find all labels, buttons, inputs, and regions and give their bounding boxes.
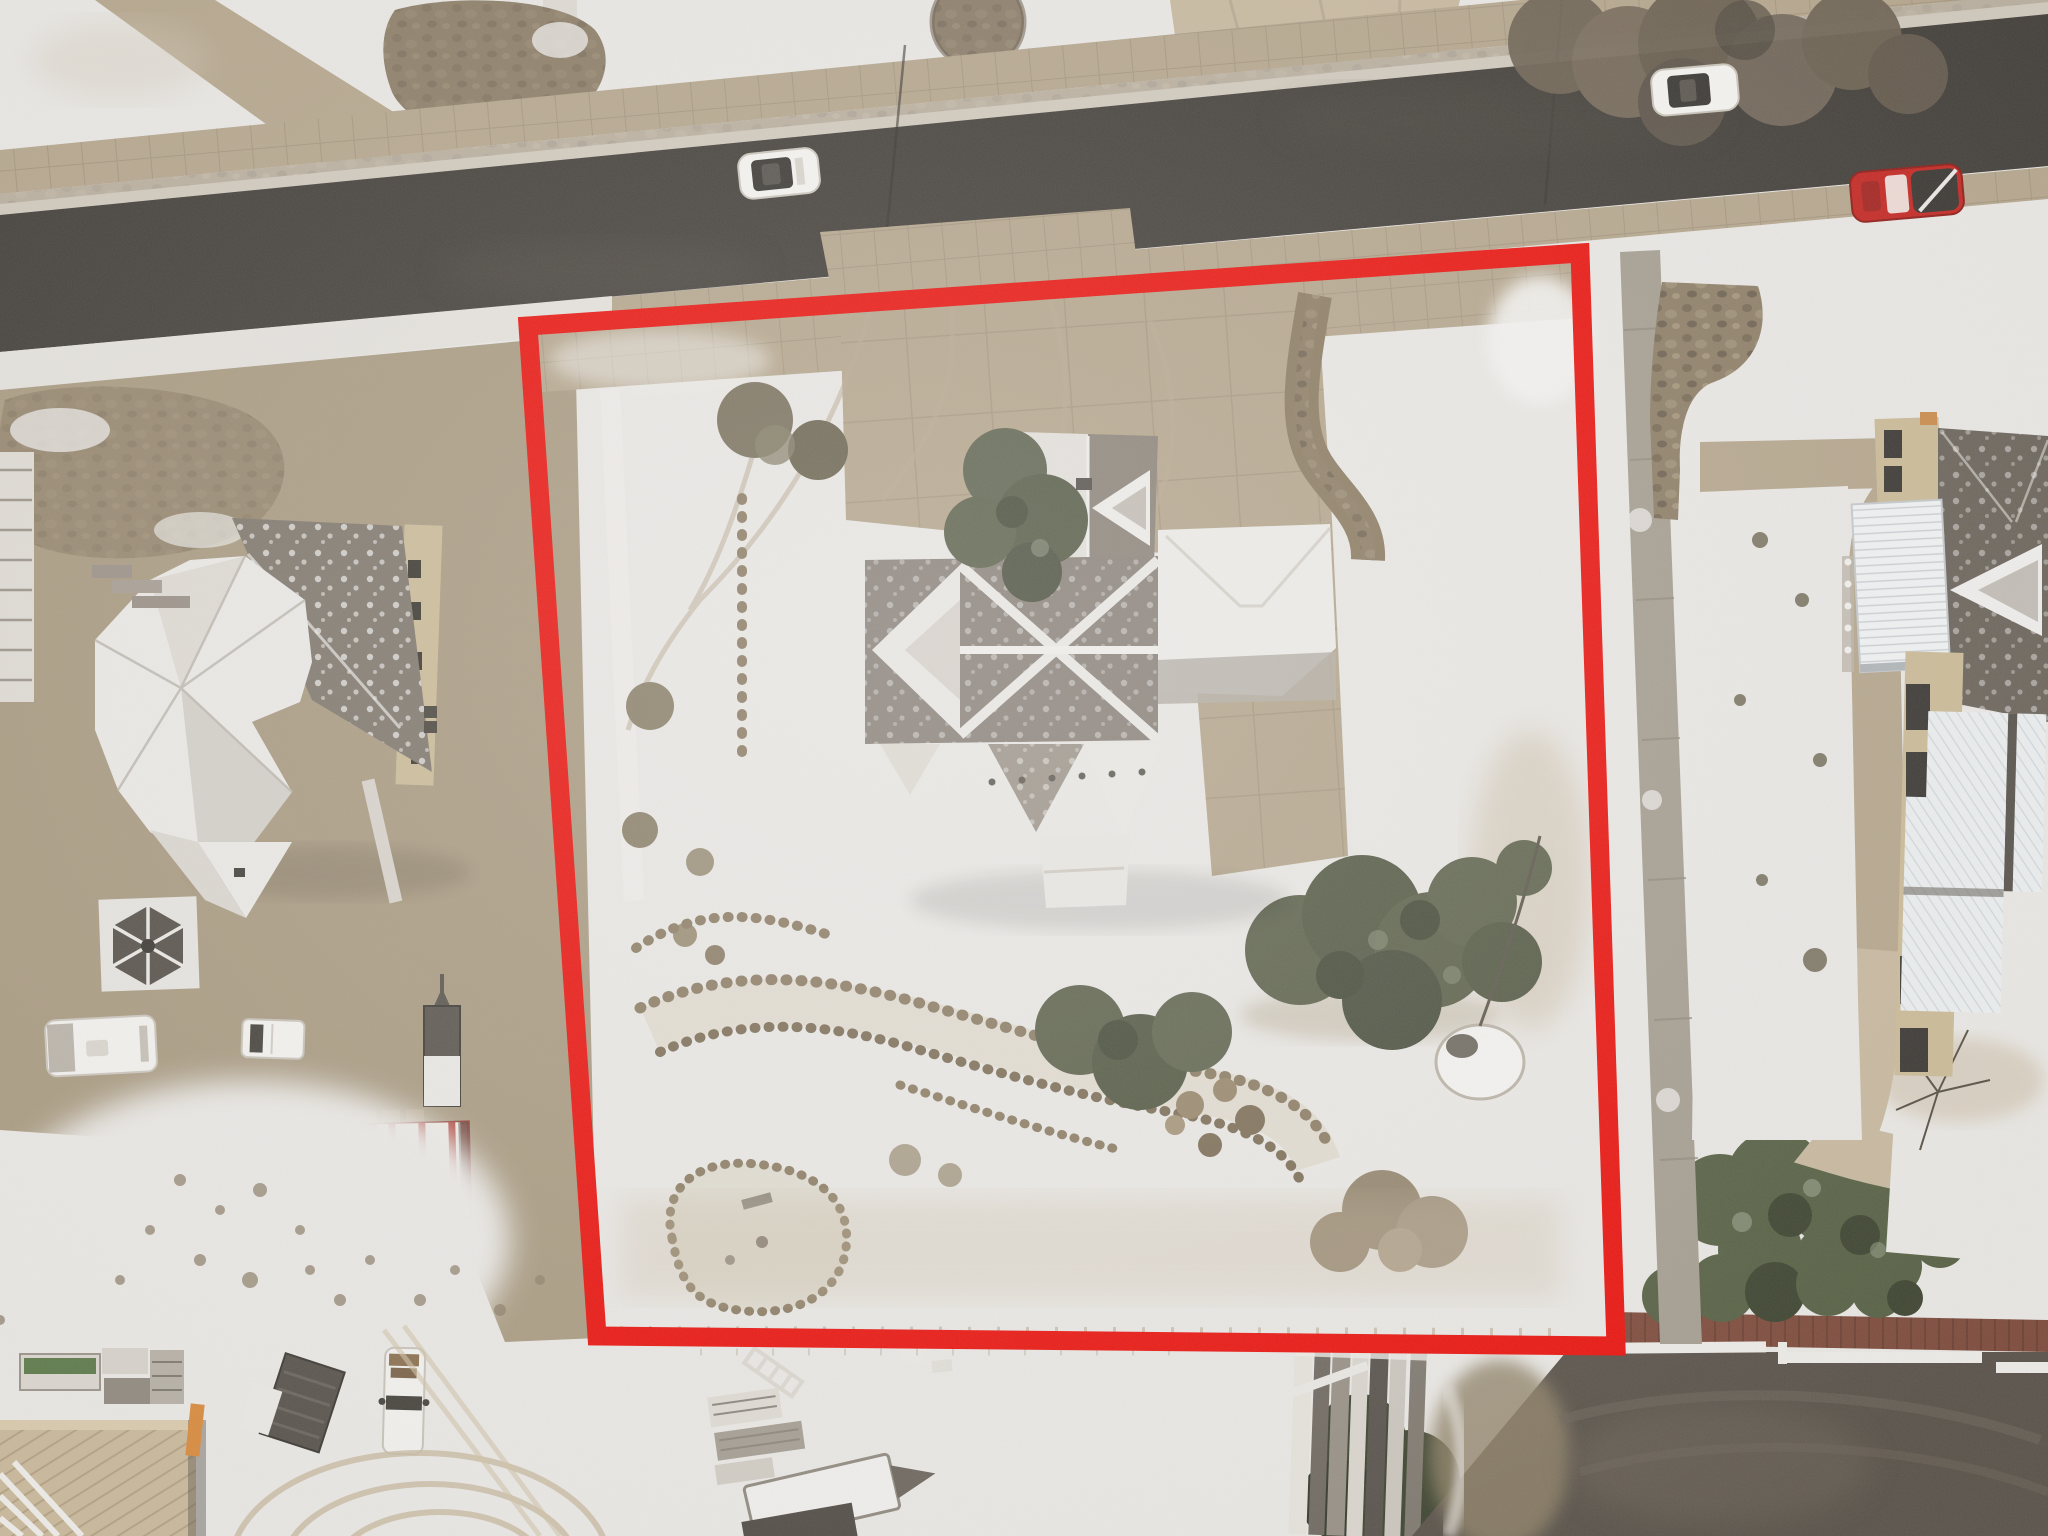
aerial-photo — [0, 0, 2048, 1536]
scene — [0, 0, 2048, 1536]
snow-haze — [0, 0, 2048, 1536]
